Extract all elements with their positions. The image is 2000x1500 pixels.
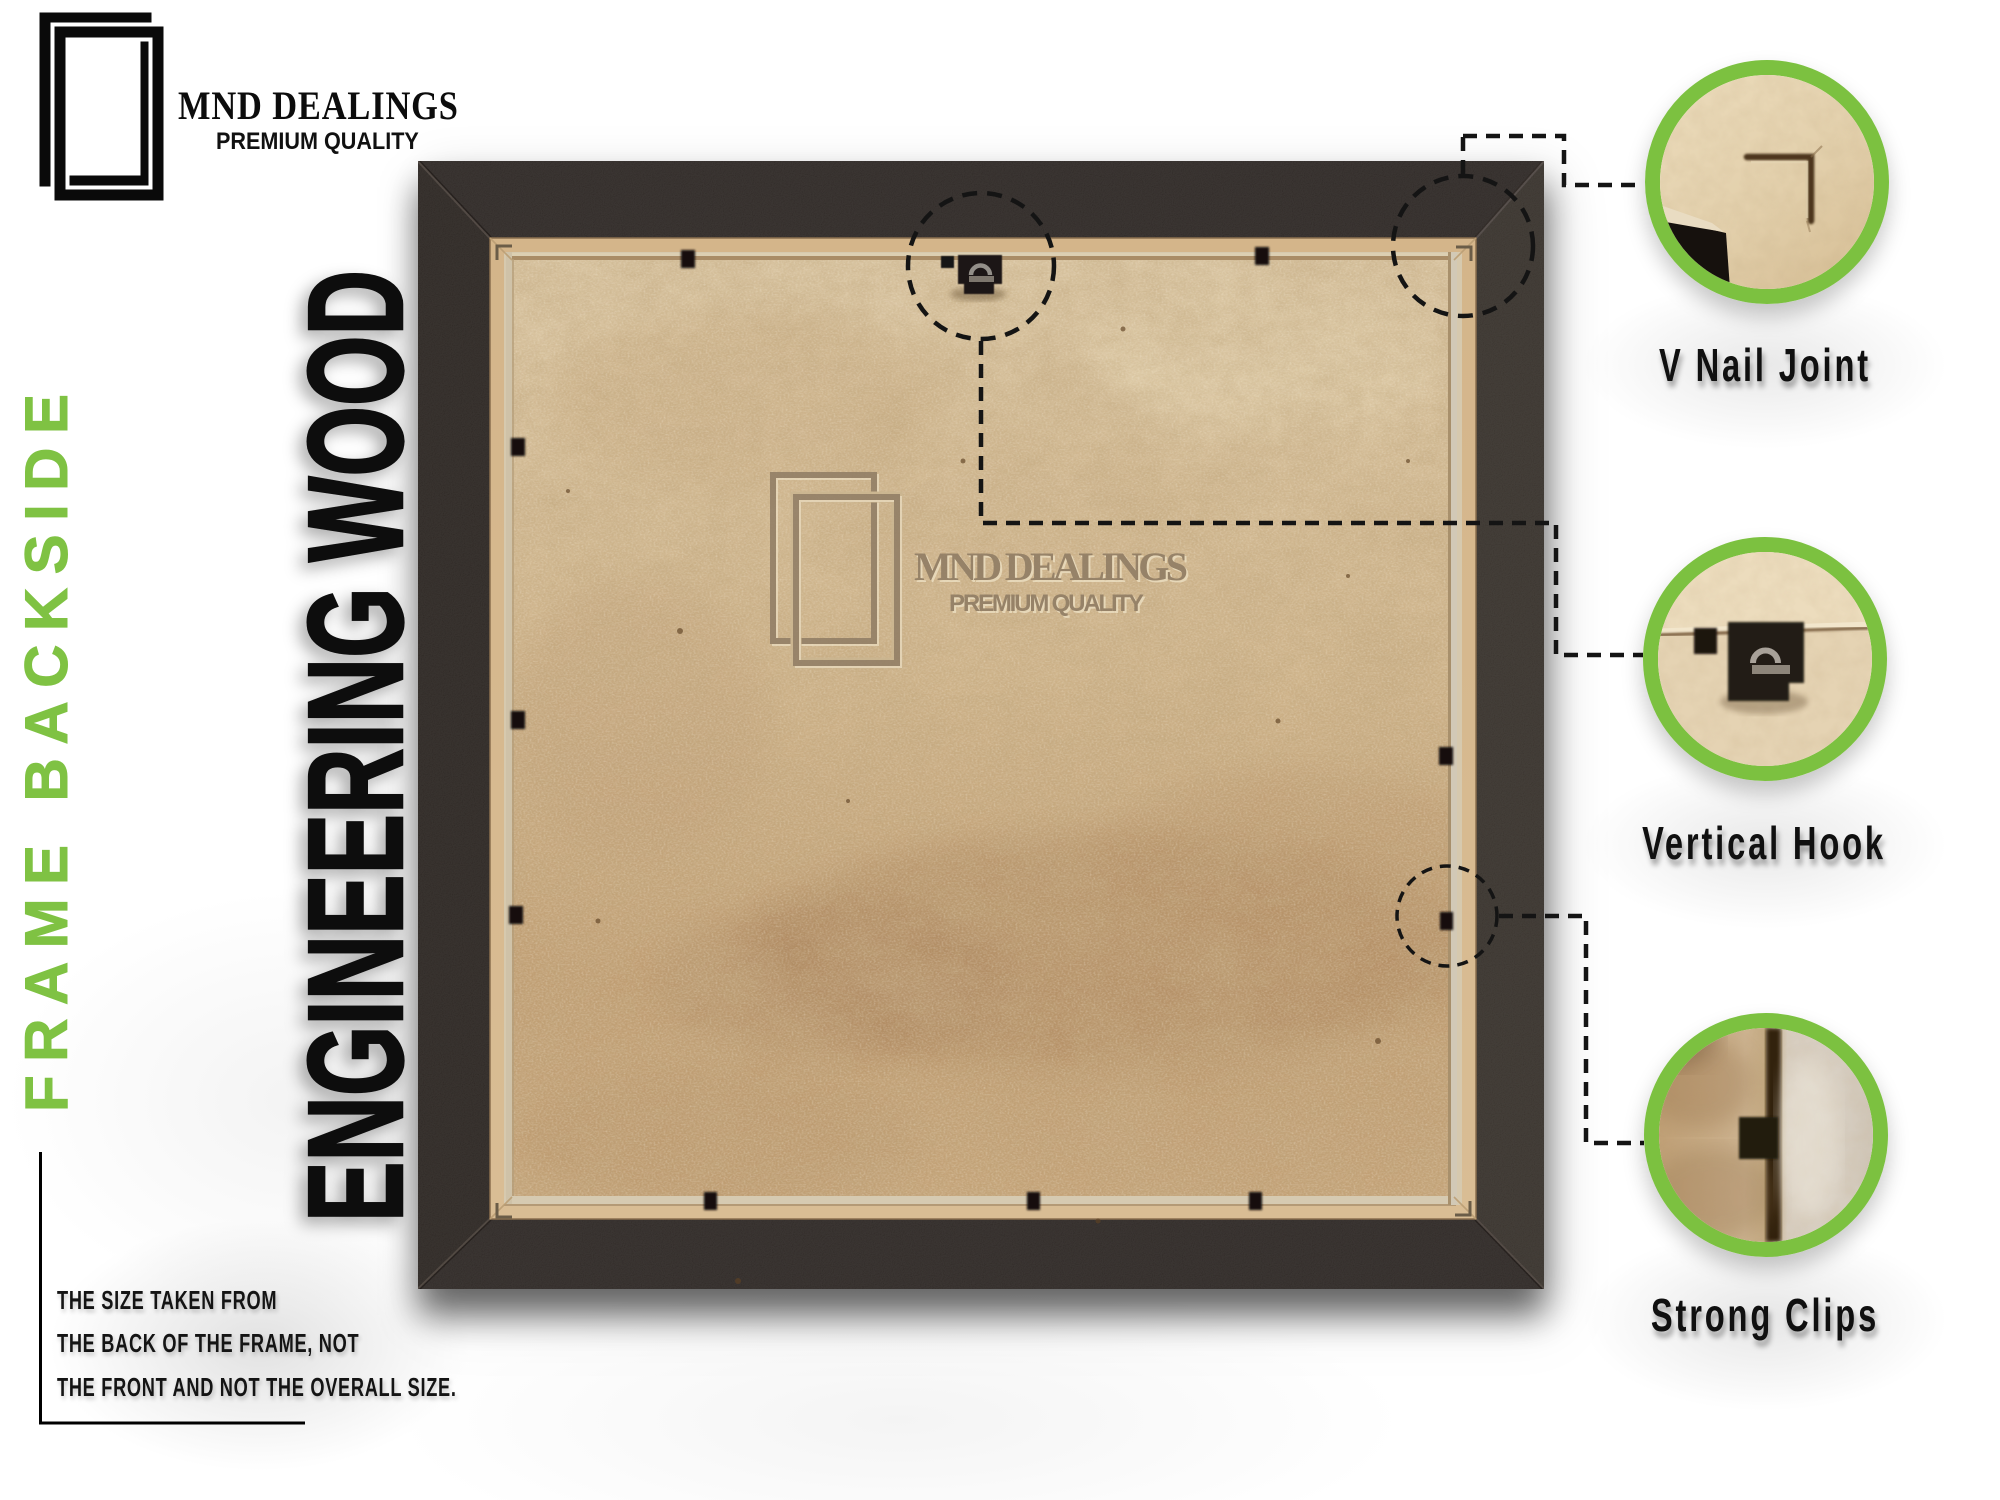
svg-text:ENGINEERING WOOD: ENGINEERING WOOD xyxy=(280,270,431,1222)
svg-text:FRAME BACKSIDE: FRAME BACKSIDE xyxy=(13,394,80,1112)
